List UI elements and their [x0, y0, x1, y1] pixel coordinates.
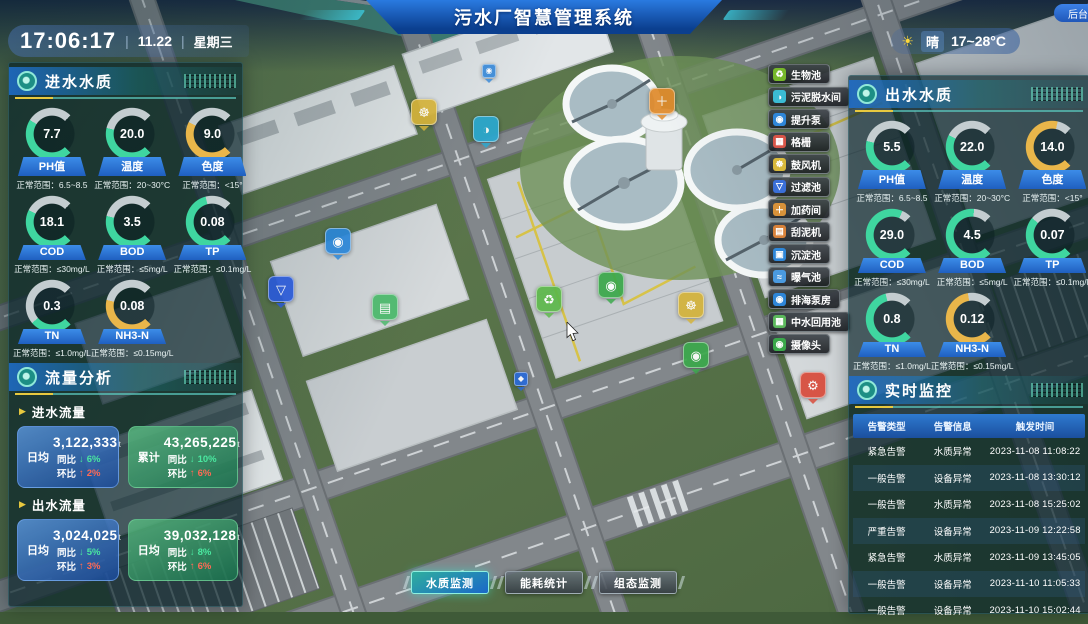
bottom-tab-bar: 水质监测 能耗统计 组态监测: [0, 571, 1088, 594]
up-arrow-icon: ↑: [190, 561, 195, 572]
mud-scraper-icon: ▤: [773, 225, 786, 238]
outlet-gauge-temp: 22.0 温度 正常范围：20~30°C: [931, 120, 1014, 204]
inlet-gauge-tp: 0.08 TP 正常范围：≤0.1mg/L: [174, 195, 252, 275]
banner-right-wing: [722, 10, 789, 20]
filter-marker[interactable]: ▽: [268, 276, 294, 302]
dosing-room-icon: ＋: [773, 203, 786, 216]
alarm-row[interactable]: 严重告警设备异常2023-11-09 12:22:58: [853, 518, 1085, 545]
lift-pump-icon: ◉: [773, 113, 786, 126]
alarm-row[interactable]: 紧急告警水质异常2023-11-08 11:08:22: [853, 438, 1085, 465]
clock-weekday: 星期三: [194, 32, 233, 51]
outlet-quality-header: 出水水质: [849, 80, 1088, 108]
inlet-total-card: 累计 43,265,225t 同比↓10% 环比↑6%: [128, 426, 238, 488]
inlet-quality-header: 进水水质: [9, 67, 242, 95]
camera-icon: ◉: [605, 279, 616, 292]
right-panel: 出水水质 5.5 PH值 正常范围：6.5~8.5 22.0 温度 正常范围：2…: [848, 75, 1088, 614]
facility-bio-pool-button[interactable]: ♻生物池: [768, 64, 830, 84]
dosing-marker[interactable]: ＋: [649, 88, 675, 114]
alarm-row[interactable]: 一般告警水质异常2023-11-08 15:25:02: [853, 491, 1085, 518]
outlet-gauge-ph: 5.5 PH值 正常范围：6.5~8.5: [853, 120, 931, 204]
grille-icon: ▦: [773, 135, 786, 148]
tab-water-quality-monitor[interactable]: 水质监测: [411, 571, 489, 594]
sun-icon: ☀: [901, 34, 914, 48]
down-arrow-icon: ↓: [190, 454, 195, 465]
panel-emblem-icon: [857, 380, 877, 400]
down-arrow-icon: ↓: [79, 547, 84, 558]
funnel-icon: ▽: [276, 283, 286, 296]
alarm-device-marker[interactable]: ⚙: [800, 372, 826, 398]
inlet-gauge-ph: 7.7 PH值 正常范围：6.5~8.5: [13, 107, 91, 191]
camera-icon: ◉: [690, 349, 701, 362]
recycle-icon: ♻: [543, 293, 555, 306]
weather-temp-range: 17~28°C: [951, 33, 1006, 49]
up-arrow-icon: ↑: [79, 561, 84, 572]
facility-button-column: ♻生物池 ◑污泥脱水间 ◉提升泵 ▦格栅 ☸鼓风机 ▽过滤池 ＋加药间 ▤刮泥机…: [768, 64, 850, 354]
facility-filter-pool-button[interactable]: ▽过滤池: [768, 177, 830, 197]
inlet-flow-subhead: ▶ 进水流量: [19, 402, 242, 421]
pin-icon: ◆: [518, 375, 524, 383]
outlet-gauge-tp: 0.07 TP 正常范围：≤0.1mg/L: [1014, 208, 1088, 288]
inlet-flow-cards: 日均 3,122,333t 同比↓6% 环比↑2% 累计 43,265,225t…: [9, 426, 242, 488]
outlet-gauge-tn: 0.8 TN 正常范围：≤1.0mg/L: [853, 292, 931, 372]
alarm-table-header: 告警类型 告警信息 触发时间: [853, 414, 1085, 438]
section-arrow-icon: ▶: [19, 406, 26, 417]
outlet-flow-subhead: ▶ 出水流量: [19, 495, 242, 514]
facility-mud-scraper-button[interactable]: ▤刮泥机: [768, 222, 830, 242]
outlet-gauge-color: 14.0 色度 正常范围：<15°: [1014, 120, 1088, 204]
filter-pool-icon: ▽: [773, 180, 786, 193]
mouse-cursor: [566, 322, 580, 342]
facility-water-reuse-button[interactable]: ▦中水回用池: [768, 312, 850, 332]
up-arrow-icon: ↑: [79, 468, 84, 479]
dosing-icon: ＋: [655, 95, 668, 108]
outlet-gauge-cod: 29.0 COD 正常范围：≤30mg/L: [853, 208, 931, 288]
facility-blower-button[interactable]: ☸鼓风机: [768, 154, 830, 174]
tab-configuration-monitor[interactable]: 组态监测: [599, 571, 677, 594]
facility-dosing-room-button[interactable]: ＋加药间: [768, 199, 830, 219]
clock-widget: 17:06:17 | 11.22 | 星期三: [8, 25, 249, 57]
facility-sea-pump-house-button[interactable]: ◉排海泵房: [768, 289, 840, 309]
weather-widget: ☀ 晴 17~28°C: [891, 28, 1020, 54]
blower-marker-2[interactable]: ☸: [678, 292, 704, 318]
alarm-row[interactable]: 一般告警设备异常2023-11-10 15:02:44: [853, 597, 1085, 624]
bio-marker[interactable]: ♻: [536, 286, 562, 312]
alarm-row[interactable]: 紧急告警水质异常2023-11-09 13:45:05: [853, 544, 1085, 571]
weather-condition: 晴: [921, 31, 944, 52]
left-panel: 进水水质 7.7 PH值 正常范围：6.5~8.5 20.0 温度 正常范围：2…: [8, 62, 243, 607]
outlet-gauge-nh3n: 0.12 NH3-N 正常范围：≤0.15mg/L: [931, 292, 1014, 372]
inlet-gauge-cod: 18.1 COD 正常范围：≤30mg/L: [13, 195, 91, 275]
location-pin-marker[interactable]: ◆: [514, 372, 528, 386]
facility-sedimentation-button[interactable]: ▣沉淀池: [768, 244, 830, 264]
page-title: 污水厂智慧管理系统: [454, 4, 634, 30]
facility-grille-button[interactable]: ▦格栅: [768, 132, 830, 152]
down-arrow-icon: ↓: [79, 454, 84, 465]
down-arrow-icon: ↓: [190, 547, 195, 558]
camera-icon: ◉: [773, 338, 786, 351]
gear-icon: ⚙: [807, 379, 819, 392]
inlet-gauge-bod: 3.5 BOD 正常范围：≤5mg/L: [91, 195, 174, 275]
inlet-gauge-grid: 7.7 PH值 正常范围：6.5~8.5 20.0 温度 正常范围：20~30°…: [9, 99, 242, 359]
facility-aeration-pool-button[interactable]: ≈曝气池: [768, 267, 830, 287]
panel-emblem-icon: [17, 71, 37, 91]
tab-energy-statistics[interactable]: 能耗统计: [505, 571, 583, 594]
clock-date: 11.22: [138, 33, 172, 49]
realtime-monitor-header: 实时监控: [849, 376, 1088, 404]
facility-lift-pump-button[interactable]: ◉提升泵: [768, 109, 830, 129]
facility-camera-button[interactable]: ◉摄像头: [768, 334, 830, 354]
fan-icon: ☸: [685, 299, 697, 312]
bio-pool-icon: ♻: [773, 68, 786, 81]
pool-icon: ▤: [379, 301, 391, 314]
panel-emblem-icon: [857, 84, 877, 104]
inlet-gauge-tn: 0.3 TN 正常范围：≤1.0mg/L: [13, 279, 91, 359]
flow-analysis-header: 流量分析: [9, 363, 242, 391]
sludge-dewatering-icon: ◑: [773, 90, 786, 103]
outlet-gauge-grid: 5.5 PH值 正常范围：6.5~8.5 22.0 温度 正常范围：20~30°…: [849, 112, 1088, 372]
reuse-marker[interactable]: ▤: [372, 294, 398, 320]
inlet-gauge-nh3n: 0.08 NH3-N 正常范围：≤0.15mg/L: [91, 279, 174, 359]
outlet-gauge-bod: 4.5 BOD 正常范围：≤5mg/L: [931, 208, 1014, 288]
inlet-gauge-temp: 20.0 温度 正常范围：20~30°C: [91, 107, 174, 191]
up-arrow-icon: ↑: [190, 468, 195, 479]
facility-sludge-dewatering-button[interactable]: ◑污泥脱水间: [768, 87, 850, 107]
sedimentation-icon: ▣: [773, 248, 786, 261]
alarm-row[interactable]: 一般告警设备异常2023-11-08 13:30:12: [853, 465, 1085, 492]
app-header: 污水厂智慧管理系统: [366, 0, 722, 34]
camera-marker-1[interactable]: ◉: [598, 272, 624, 298]
pump-marker-1[interactable]: ◑: [473, 116, 499, 142]
water-reuse-icon: ▦: [773, 315, 786, 328]
banner-left-wing: [298, 10, 365, 20]
clock-time: 17:06:17: [20, 28, 116, 54]
inlet-daily-card: 日均 3,122,333t 同比↓6% 环比↑2%: [17, 426, 119, 488]
fan-icon: ☸: [418, 106, 430, 119]
inlet-gauge-color: 9.0 色度 正常范围：<15°: [174, 107, 252, 191]
device-marker-top[interactable]: ◉: [482, 64, 496, 78]
blower-icon: ☸: [773, 158, 786, 171]
sea-pump-house-icon: ◉: [773, 293, 786, 306]
camera-marker-2[interactable]: ◉: [683, 342, 709, 368]
section-arrow-icon: ▶: [19, 499, 26, 510]
aeration-pool-icon: ≈: [773, 270, 786, 283]
pump-icon: ◉: [332, 235, 343, 248]
pump-marker-2[interactable]: ◉: [325, 228, 351, 254]
device-icon: ◉: [486, 67, 493, 75]
backend-button[interactable]: 后台: [1054, 4, 1088, 22]
pump-icon: ◑: [482, 123, 490, 136]
blower-marker-1[interactable]: ☸: [411, 99, 437, 125]
panel-emblem-icon: [17, 367, 37, 387]
